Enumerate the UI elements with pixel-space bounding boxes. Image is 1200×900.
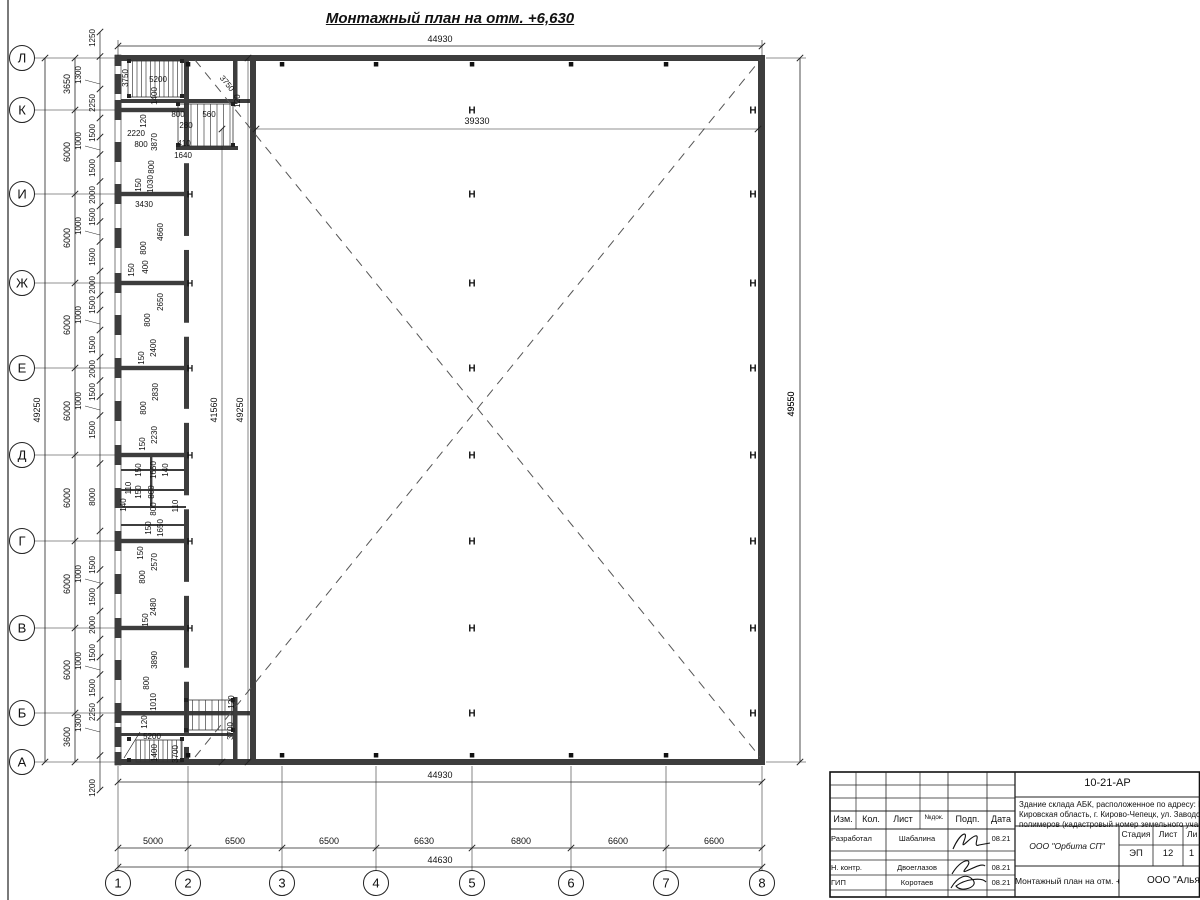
axis-row-label: Б [18,706,27,721]
column-mark: Н [749,709,756,720]
dim-chain: 2250 [88,703,97,721]
column-mark: Н [187,624,194,634]
dim-bay: 6600 [704,836,724,846]
dim-bay: 6800 [511,836,531,846]
dim-chain: 1200 [88,779,97,797]
dim-label: 150 [134,485,143,499]
axis-row-label: Ж [16,276,28,291]
dim-label: 140 [161,463,170,477]
dim-label: 2570 [150,553,159,571]
dim-row-spacing: 6000 [62,315,72,335]
dim-label: 120 [139,114,148,128]
axis-col-label: 8 [758,876,765,891]
dim-chain: 1000 [74,392,83,410]
column-mark: Н [187,364,194,374]
dim-label: 150 [134,178,143,192]
dim-label: 1400 [150,87,159,105]
dim-label: 400 [141,260,150,274]
dim-label: 800 [147,485,156,499]
dim-chain: 2000 [88,616,97,634]
dim-overall-top: 44930 [427,34,452,44]
axis-row-label: А [18,755,27,770]
column-mark: Н [187,537,194,547]
column-mark: Н [749,364,756,375]
dim-chain: 1500 [88,336,97,354]
dim-label: 3890 [150,651,159,669]
axis-row-label: Л [18,51,27,66]
axis-row-label: Д [18,448,27,463]
dim-label: 800 [139,401,148,415]
dim-row-spacing: 6000 [62,401,72,421]
axis-col-label: 4 [372,876,379,891]
dim-label: 120 [140,715,149,729]
dim-label: 150 [127,263,136,277]
plan-dimension-labels: 3750520014001208002805602220800387041016… [119,69,796,763]
dim-label: 150 [138,437,147,451]
dim-label: 2230 [150,426,159,444]
dim-label: 800 [171,110,185,119]
drawing-sheet: НННННННННННННННННННННН449304493050006500… [0,0,1200,900]
dim-label: 3870 [150,133,159,151]
dim-label: 1030 [146,175,155,193]
dim-label: 120 [227,695,236,709]
dim-label: 3700 [226,722,235,740]
column-mark: Н [187,451,194,461]
axis-row-label: Е [18,361,27,376]
column-mark: Н [468,451,475,462]
dim-bay: 5000 [143,836,163,846]
axis-row-label: К [18,103,26,118]
dim-label: 39330 [464,116,489,126]
dim-row-spacing: 6000 [62,228,72,248]
axis-col-label: 1 [114,876,121,891]
dim-chain: 1500 [88,208,97,226]
dim-chain: 1300 [74,66,83,84]
axis-col-label: 3 [278,876,285,891]
dim-label: 1640 [174,151,192,160]
column-mark: Н [749,190,756,201]
dim-chain: 2250 [88,94,97,112]
axis-col-label: 2 [184,876,191,891]
column-mark: Н [187,279,194,289]
dim-label: 4660 [156,223,165,241]
column-mark: Н [749,537,756,548]
column-mark: Н [468,537,475,548]
dim-label: 800 [147,160,156,174]
dim-chain: 2000 [88,186,97,204]
column-mark: Н [468,279,475,290]
column-mark: Н [749,451,756,462]
dim-row-spacing: 6000 [62,488,72,508]
plan-svg: НННННННННННННННННННННН449304493050006500… [0,0,1200,900]
dim-label: 800 [138,570,147,584]
dim-chain: 2000 [88,360,97,378]
dim-label: 1650 [156,519,165,537]
axis-row-label: И [17,187,26,202]
dim-total-left: 49250 [32,397,42,422]
dim-row-spacing: 6000 [62,142,72,162]
dim-label: 800 [139,241,148,255]
axis-col-label: 7 [662,876,669,891]
dim-chain: 2000 [88,276,97,294]
axis-row-label: В [18,621,27,636]
dim-label: 2650 [156,293,165,311]
dim-label: 120 [233,94,242,108]
dim-label: 280 [179,121,193,130]
titleblock-lines [830,772,1200,897]
dim-overall-bottom: 44930 [427,770,452,780]
dim-label: 5200 [149,75,167,84]
dim-chain: 1500 [88,124,97,142]
dim-label: 140 [119,498,128,512]
dim-chain: 1000 [74,132,83,150]
dim-label: 800 [134,140,148,149]
column-mark: Н [749,624,756,635]
dim-label: 800 [149,502,158,516]
drawing-title: Монтажный план на отм. +6,630 [240,10,660,27]
dim-chain: 1500 [88,159,97,177]
dim-label: 2400 [149,339,158,357]
column-mark: Н [468,709,475,720]
dim-chain: 1500 [88,383,97,401]
dim-label: 150 [137,351,146,365]
dim-chain: 1300 [74,714,83,732]
dim-chain: 1500 [88,556,97,574]
dimension-lines: 4493044930500065006500663068006600660044… [32,29,806,872]
dim-total-bottom: 44630 [427,855,452,865]
axis-col-label: 6 [567,876,574,891]
dim-label: 560 [202,110,216,119]
dim-chain: 1000 [74,565,83,583]
dim-row-spacing: 3650 [62,74,72,94]
dim-label: 110 [124,481,133,494]
dim-label: 49550 [786,391,796,416]
dim-chain: 1500 [88,296,97,314]
column-mark: Н [749,106,756,117]
column-mark: Н [468,106,475,117]
column-mark: Н [468,624,475,635]
axis-col-label: 5 [468,876,475,891]
dim-chain: 1000 [74,217,83,235]
dim-chain: 1500 [88,644,97,662]
dim-label: 1650 [149,461,158,479]
dim-label: 800 [142,676,151,690]
signatures [951,834,990,889]
axis-row-label: Г [18,534,25,549]
column-markers: НННННННННННННННННННННН [186,62,757,758]
dim-label: 3750 [121,69,130,87]
column-mark: Н [749,279,756,290]
dim-label: 41560 [209,397,219,422]
bracing-diagonals [195,60,760,757]
dim-label: 1400 [150,744,159,762]
dim-row-spacing: 6000 [62,660,72,680]
dim-row-spacing: 6000 [62,574,72,594]
dim-label: 2480 [149,598,158,616]
dim-label: 800 [143,313,152,327]
dim-row-spacing: 3600 [62,727,72,747]
dim-chain: 1000 [74,306,83,324]
column-mark: Н [468,190,475,201]
dim-label: 410 [177,139,191,148]
dim-chain: 1500 [88,679,97,697]
dim-chain: 1000 [74,652,83,670]
dim-label: 150 [144,521,153,535]
dim-label: 2830 [151,383,160,401]
dim-label: 110 [171,499,180,512]
dim-label: 3430 [135,200,153,209]
dim-bay: 6500 [225,836,245,846]
column-mark: Н [468,364,475,375]
dim-label: 1010 [149,693,158,711]
column-mark: Н [187,190,194,200]
dim-label: 5200 [143,732,161,741]
dim-label: 150 [136,546,145,560]
dim-chain: 1250 [88,29,97,47]
dim-chain: 8000 [88,488,97,506]
dim-label: 49250 [235,397,245,422]
dim-label: 2220 [127,129,145,138]
dim-chain: 1500 [88,588,97,606]
dim-chain: 1500 [88,248,97,266]
dim-label: 150 [141,613,150,627]
dim-bay: 6500 [319,836,339,846]
dim-bay: 6630 [414,836,434,846]
dim-bay: 6600 [608,836,628,846]
dim-label: 3700 [171,745,180,763]
dim-label: 150 [134,463,143,477]
dim-chain: 1500 [88,421,97,439]
